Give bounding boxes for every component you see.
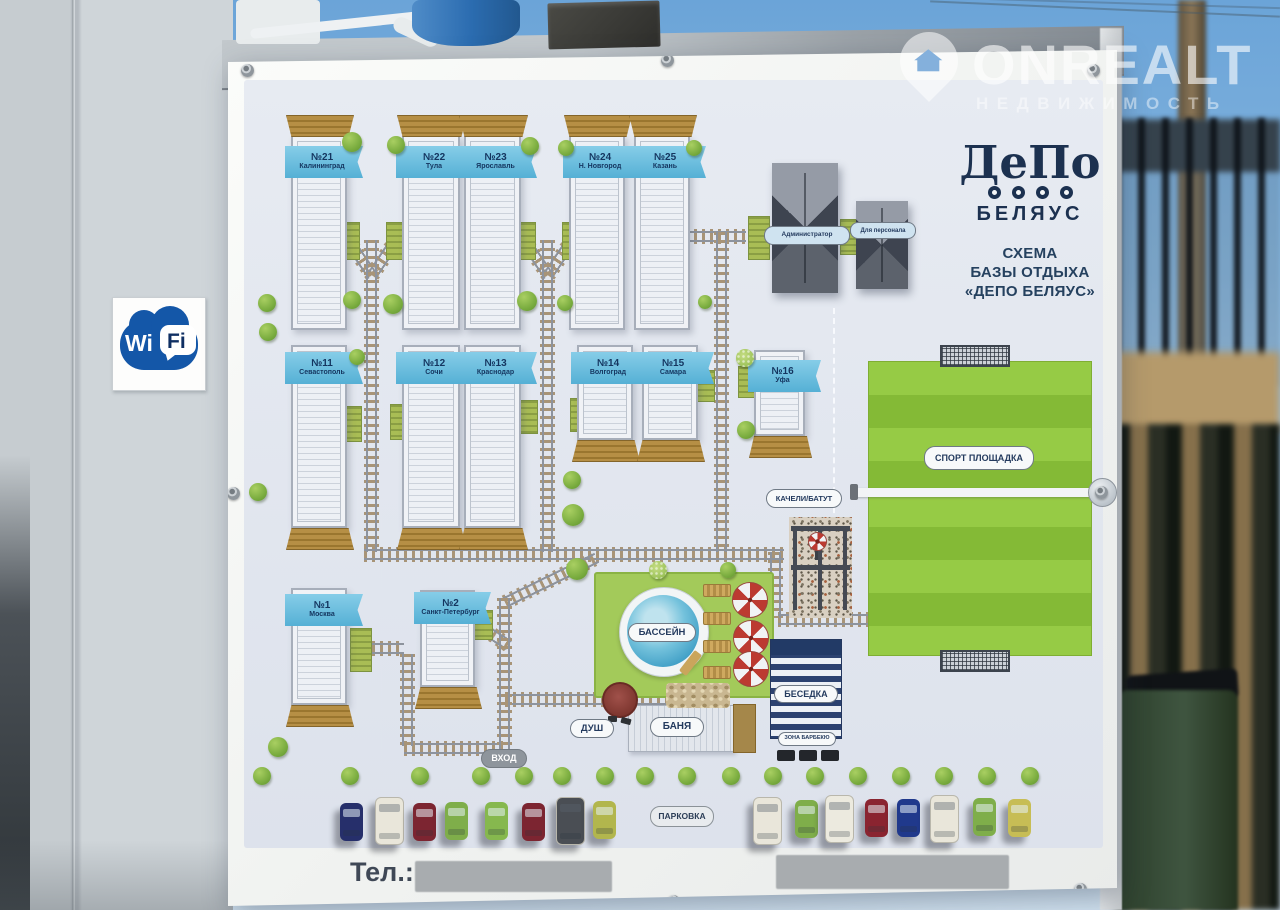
house-platform [415,687,482,709]
wheel-icon [1060,186,1073,199]
car-windshield [379,804,400,812]
car-rear-window [596,828,613,834]
playground-label: КАЧЕЛИ/БАТУТ [766,489,842,508]
house-number: №2 [442,598,459,609]
goal-net-top [940,345,1010,367]
parked-car [930,795,959,843]
banner-grommet [227,487,240,500]
parked-car [825,795,854,843]
staff-label: Для персонала [850,222,916,239]
bush [249,483,267,501]
bush [411,767,429,785]
house-number: №1 [314,600,331,611]
bbq-grill [821,750,839,761]
net-post-left [850,484,858,500]
onrealt-watermark: ONREALT НЕДВИЖИМОСТЬ [890,26,1270,126]
railway-track [714,232,729,552]
field-band [1114,352,1280,432]
net-line [854,488,1104,497]
parked-car [1008,799,1031,837]
wall-seam [72,0,75,910]
bush [557,295,573,311]
house-city: Краснодар [477,369,514,377]
house-platform [286,705,354,727]
house-platform [397,528,467,550]
sauna-label: БАНЯ [650,717,704,737]
house-platform [286,528,354,550]
house-label: №1Москва [285,594,363,626]
phone-number-redacted [415,861,612,892]
parked-car [413,803,436,841]
wall-bottom-shade [0,840,233,910]
car-rear-window [757,833,778,839]
house-number: №12 [423,358,445,369]
car-windshield [976,804,993,812]
bush [343,291,361,309]
bush [722,767,740,785]
entrance-label: ВХОД [481,749,527,768]
house-number: №23 [484,152,506,163]
bush [341,767,359,785]
house-city: Севастополь [299,369,345,377]
wood-shed [733,704,756,753]
car-rear-window [448,829,465,835]
onrealt-brand: ONREALT [972,32,1253,97]
house-number: №13 [484,358,506,369]
parked-car [556,797,585,845]
house-label: №2Санкт-Петербург [414,592,491,624]
house-number: №25 [654,152,676,163]
bush [342,132,362,152]
car-windshield [798,806,815,814]
car-windshield [757,804,778,812]
car-rear-window [934,831,955,837]
car-rear-window [379,833,400,839]
fence-bars-upper [1114,118,1280,386]
car-rear-window [560,833,581,839]
wheel-icon [988,186,1001,199]
railway-track [364,240,379,552]
parking-label: ПАРКОВКА [650,806,714,827]
bush [649,561,667,579]
dumpster [1118,690,1238,910]
car-rear-window [829,831,850,837]
car-rear-window [798,827,815,833]
bush [806,767,824,785]
bush [698,295,712,309]
car-windshield [560,804,581,812]
parked-car [485,802,508,840]
bush [517,291,537,311]
house-platform [629,115,697,137]
gazebo-roof-band [771,640,841,655]
bush [764,767,782,785]
bush [978,767,996,785]
parked-car [445,802,468,840]
sun-lounger [703,666,731,679]
bush [558,140,574,156]
pool-label: БАССЕЙН [628,623,696,642]
house-label: №16Уфа [748,360,821,392]
house-platform [564,115,632,137]
sport-field-label: СПОРТ ПЛОЩАДКА [924,446,1034,470]
umbrella-icon [732,582,768,618]
phone-number-redacted [776,855,1009,889]
house-platform [459,115,528,137]
parked-car [522,803,545,841]
admin-label: Администратор [764,226,850,245]
bush [268,737,288,757]
house-city: Калининград [299,163,344,171]
house-label: №13Краснодар [458,352,537,384]
house-platform [749,436,812,458]
swing-frame [843,526,847,610]
pinwheel-icon [808,532,827,551]
house-platform [397,115,467,137]
scheme-title-line3: «ДЕПО БЕЛЯУС» [945,282,1115,301]
bush [387,136,405,154]
railway-track [540,240,555,552]
house-city: Ярославль [476,163,515,171]
phone-label: Тел.: [350,857,414,888]
bush [678,767,696,785]
umbrella-icon [733,651,769,687]
parked-car [973,798,996,836]
wifi-fi-label: Fi [167,330,186,354]
house-number: №11 [311,358,333,369]
bush [935,767,953,785]
car-rear-window [488,829,505,835]
blue-barrel [412,0,520,46]
house-platform [572,440,640,462]
bush [563,471,581,489]
wall-pillar [0,0,233,910]
goal-net-bottom [940,650,1010,672]
bbq-label: ЗОНА БАРБЕКЮ [778,732,836,746]
car-windshield [1011,805,1028,813]
parked-car [753,797,782,845]
brick-on-wall [547,1,660,50]
house-city: Казань [653,163,677,171]
parked-car [340,803,363,841]
railway-track [400,654,415,746]
house-number: №22 [423,152,445,163]
car-rear-window [900,826,917,832]
parked-car [795,800,818,838]
car-windshield [934,802,955,810]
house-number: №16 [771,366,793,377]
house-number: №14 [597,358,619,369]
bush [472,767,490,785]
house-number: №24 [589,152,611,163]
banner-grommet [241,64,254,77]
staff-building [856,201,908,289]
house-city: Тула [426,163,442,171]
bbq-grill [799,750,817,761]
car-rear-window [416,830,433,836]
car-windshield [868,805,885,813]
car-windshield [488,808,505,816]
house-number: №15 [662,358,684,369]
wifi-sign: Wi Fi [112,297,206,391]
car-rear-window [343,830,360,836]
scheme-title-line2: БАЗЫ ОТДЫХА [945,263,1115,282]
car-windshield [416,809,433,817]
bush [736,349,754,367]
shower-label: ДУШ [570,719,614,738]
house-city: Н. Новгород [579,163,622,171]
bush [636,767,654,785]
depo-logo-train-text: ДеПо [950,140,1110,185]
parked-car [375,797,404,845]
house-platform [286,115,354,137]
platform-pad [520,400,538,434]
house-city: Волгоград [590,369,626,377]
bush [720,562,736,578]
car-rear-window [976,825,993,831]
swing-frame [793,526,797,610]
banner-grommet [1095,486,1108,499]
car-windshield [829,802,850,810]
house-label: №15Самара [636,352,714,384]
car-windshield [900,805,917,813]
bush [562,504,584,526]
house-city: Самара [660,369,686,377]
background-fence [1100,0,1280,910]
house-city: Санкт-Петербург [421,609,479,617]
car-rear-window [868,826,885,832]
car-rear-window [1011,826,1028,832]
house-city: Уфа [775,377,789,385]
bush [566,558,588,580]
bush [253,767,271,785]
onrealt-pin-icon [888,20,970,102]
depo-logo: ДеПо БЕЛЯУС [950,140,1110,226]
onrealt-tagline: НЕДВИЖИМОСТЬ [976,94,1228,114]
photo-of-resort-map-banner: Wi Fi ДеПо БЕЛ [0,0,1280,910]
car-rear-window [525,830,542,836]
bush [596,767,614,785]
house-platform [637,440,705,462]
car-windshield [596,807,613,815]
sun-lounger [703,612,731,625]
sport-field [868,361,1092,656]
bush [553,767,571,785]
bush [521,137,539,155]
wheel-icon [1036,186,1049,199]
wifi-wi-label: Wi [125,330,153,357]
parked-car [897,799,920,837]
bush [686,140,702,156]
bush [349,349,365,365]
car-windshield [343,809,360,817]
sun-lounger [703,640,731,653]
onrealt-house-glyph [914,49,942,71]
fire-pit [602,682,638,718]
house-city: Сочи [425,369,443,377]
sun-lounger [703,584,731,597]
bush [1021,767,1039,785]
bbq-grill [777,750,795,761]
stone-path [666,683,730,708]
bush [515,767,533,785]
bush [258,294,276,312]
car-windshield [448,808,465,816]
scheme-title-line1: СХЕМА [945,244,1115,263]
house-number: №21 [311,152,333,163]
car-windshield [525,809,542,817]
depo-logo-name: БЕЛЯУС [950,203,1110,226]
bush [383,294,403,314]
parked-car [593,801,616,839]
bush [892,767,910,785]
platform-pad [350,628,372,672]
wheel-icon [1012,186,1025,199]
bush [737,421,755,439]
map-banner: ДеПо БЕЛЯУС СХЕМА БАЗЫ ОТДЫХА «ДЕПО БЕЛЯ… [228,50,1117,908]
house-platform [459,528,528,550]
gazebo-label: БЕСЕДКА [774,685,838,703]
bush [259,323,277,341]
bush [849,767,867,785]
railway-track [497,598,512,756]
parked-car [865,799,888,837]
house-city: Москва [309,611,335,619]
scheme-title: СХЕМА БАЗЫ ОТДЫХА «ДЕПО БЕЛЯУС» [945,244,1115,301]
